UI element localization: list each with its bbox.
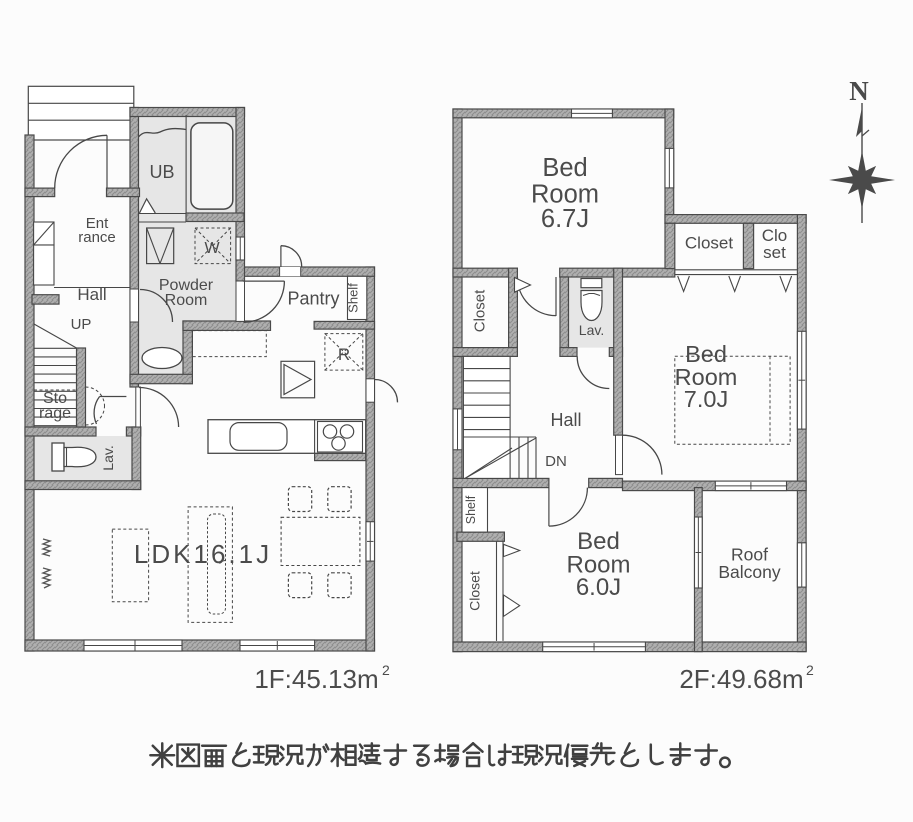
svg-text:Closet: Closet (685, 234, 733, 253)
svg-text:Hall: Hall (77, 285, 106, 304)
svg-text:set: set (763, 243, 786, 262)
svg-text:Shelf: Shelf (464, 495, 478, 524)
svg-text:Room: Room (165, 292, 208, 309)
svg-text:2F:49.68m: 2F:49.68m (679, 664, 803, 694)
svg-text:LDK16.1J: LDK16.1J (134, 539, 272, 569)
svg-text:W: W (204, 240, 220, 257)
svg-text:Closet: Closet (472, 289, 489, 332)
svg-text:6.7J: 6.7J (541, 205, 589, 233)
svg-text:Shelf: Shelf (346, 283, 361, 313)
svg-text:2: 2 (382, 662, 390, 678)
svg-text:2: 2 (806, 662, 814, 678)
svg-text:UB: UB (149, 162, 174, 182)
svg-text:Balcony: Balcony (718, 562, 781, 582)
svg-text:7.0J: 7.0J (684, 386, 728, 412)
svg-text:1F:45.13m: 1F:45.13m (254, 664, 378, 694)
svg-text:Hall: Hall (550, 410, 581, 430)
svg-text:rage: rage (39, 405, 71, 422)
svg-text:rance: rance (78, 229, 116, 246)
svg-text:N: N (849, 76, 869, 106)
svg-text:Lav.: Lav. (579, 322, 604, 338)
svg-text:Pantry: Pantry (287, 289, 339, 309)
svg-text:Bed: Bed (542, 154, 587, 182)
svg-text:R: R (338, 345, 350, 364)
svg-text:DN: DN (545, 453, 567, 470)
svg-text:6.0J: 6.0J (576, 574, 621, 601)
svg-text:UP: UP (71, 316, 92, 333)
svg-text:Lav.: Lav. (100, 445, 116, 470)
svg-text:Closet: Closet (467, 571, 483, 611)
